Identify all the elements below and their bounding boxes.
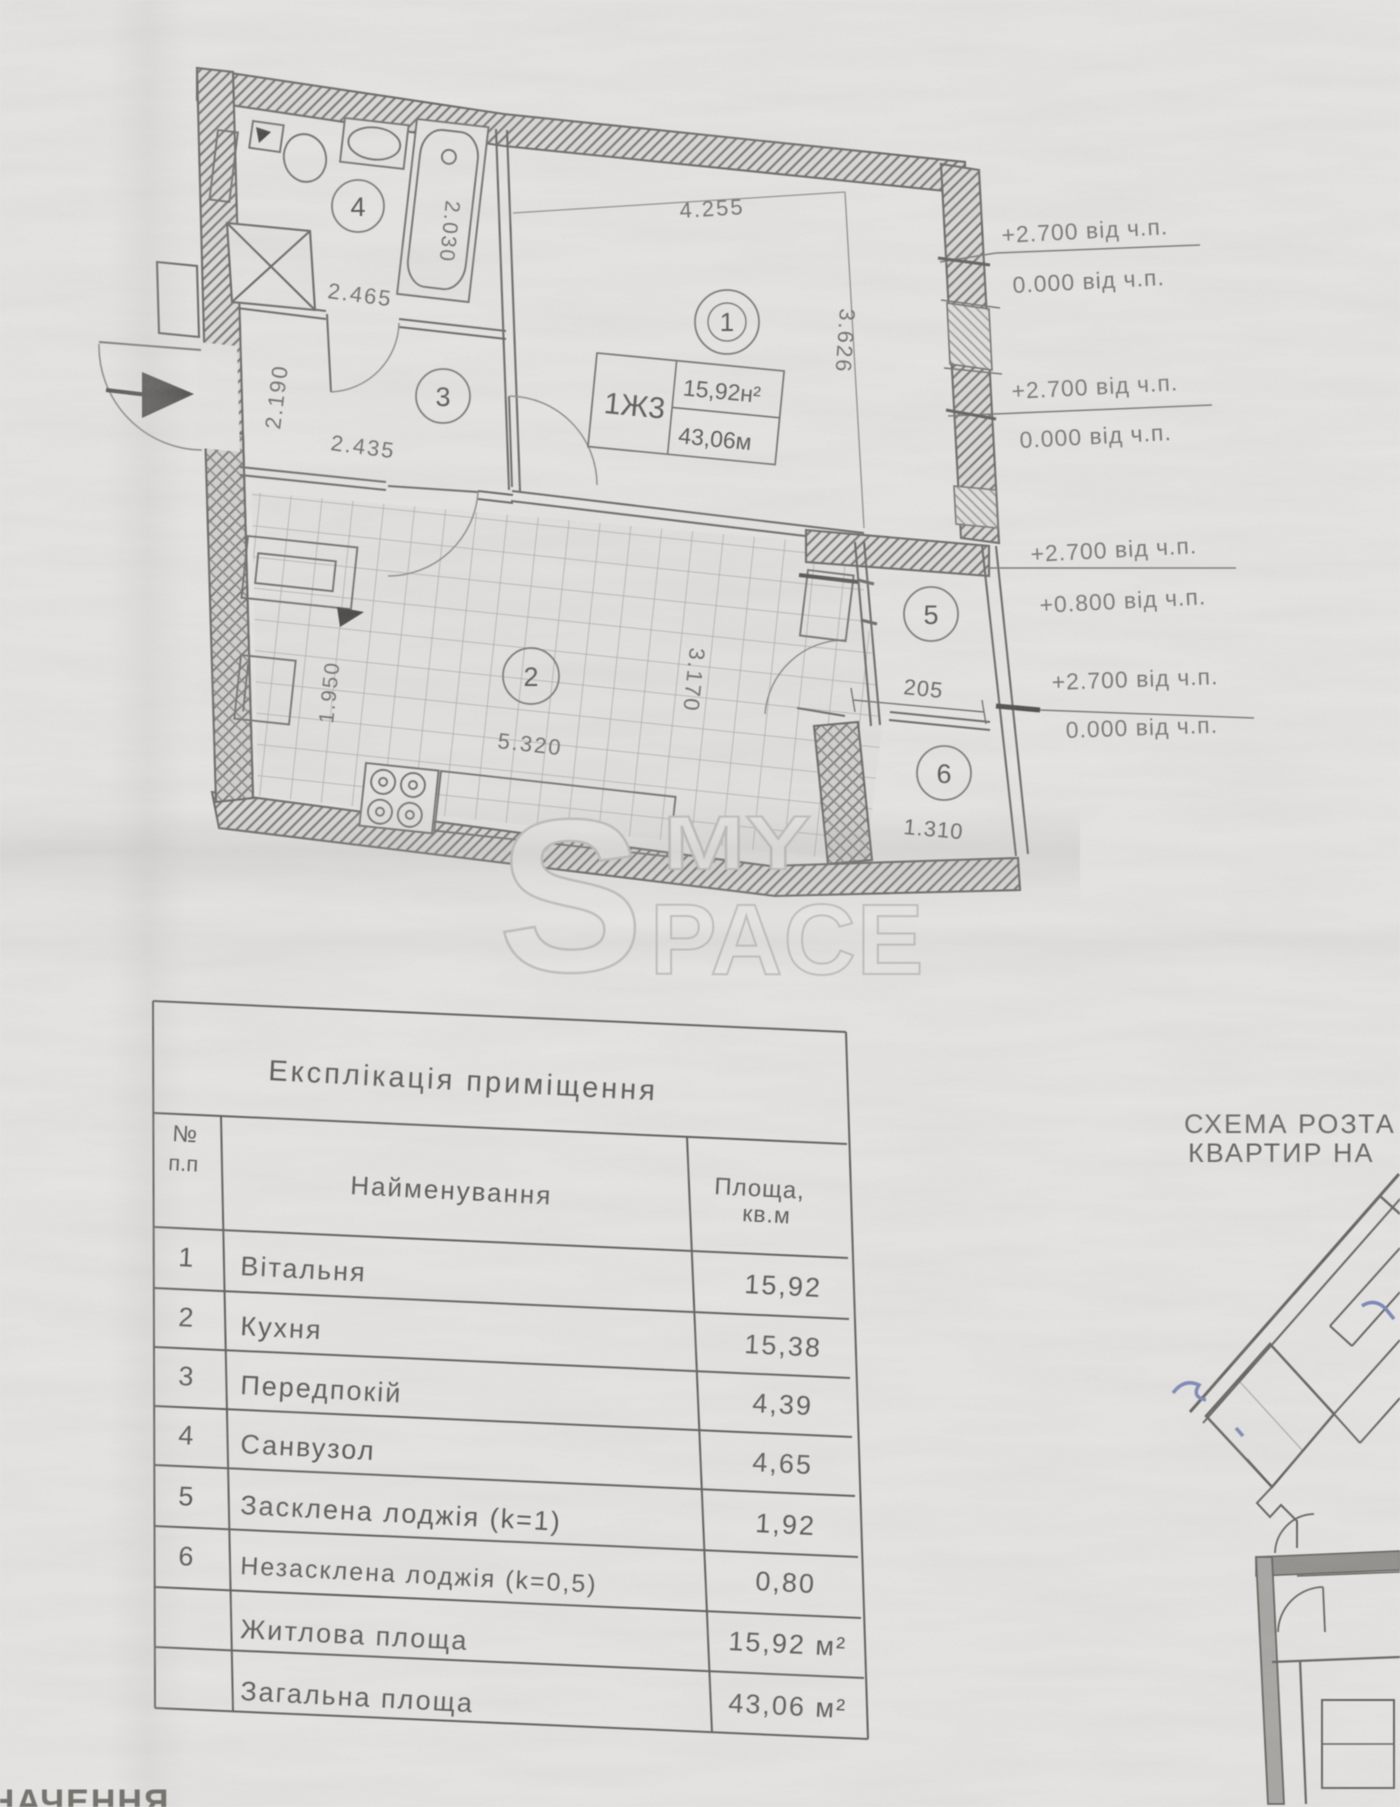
svg-text:ОЗНАЧЕННЯ: ОЗНАЧЕННЯ (0, 1783, 170, 1807)
